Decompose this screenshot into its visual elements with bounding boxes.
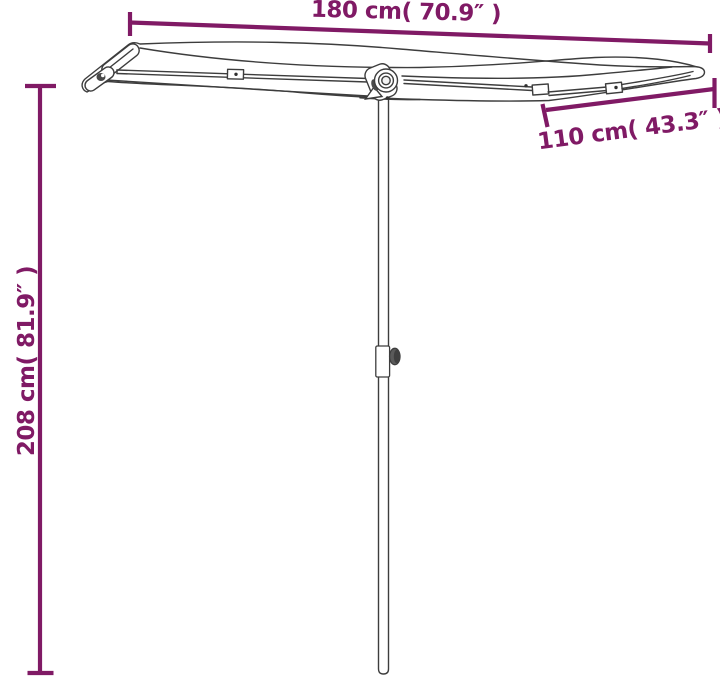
dimension-lines [25,12,715,673]
parasol-pole [379,93,389,674]
parasol-dimension-diagram: 180 cm( 70.9″ ) 110 cm( 43.3″ ) 208 cm( … [0,0,720,678]
crank-knob [376,346,400,377]
height-dimension-label: 208 cm( 81.9″ ) [14,251,40,471]
parasol-illustration [0,0,720,678]
